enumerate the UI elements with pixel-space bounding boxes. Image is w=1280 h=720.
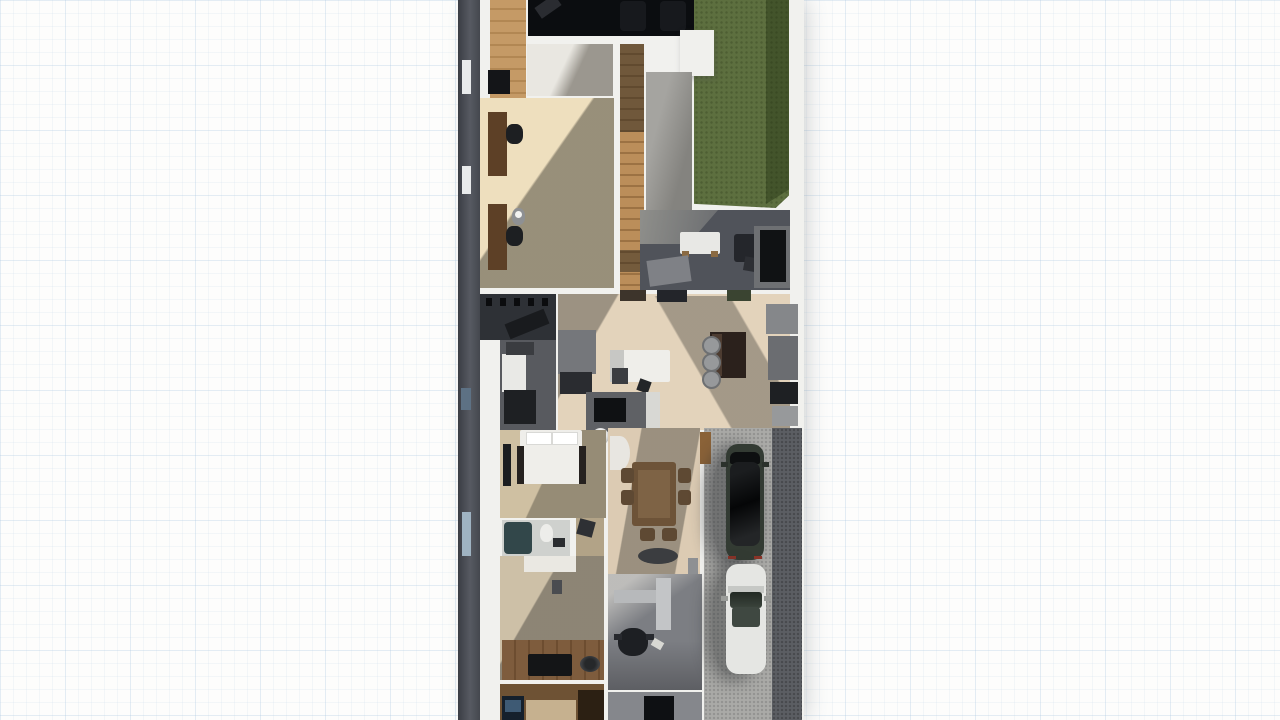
kitchen-low-cabinet: [560, 372, 592, 394]
dining-chair-3: [678, 468, 691, 483]
bed-pillow-2: [552, 432, 578, 445]
bed-pillow-1: [526, 432, 552, 445]
bedroom2-dresser: [524, 556, 576, 572]
staircase-upper-shadow: [620, 44, 644, 132]
study-office-chair: [618, 628, 648, 656]
car-white-mirror-left: [721, 596, 728, 601]
floorplan-canvas[interactable]: [0, 0, 1280, 720]
guest-tv-screen: [505, 700, 521, 712]
utility-cabinet: [506, 342, 534, 355]
workshop-toolrow: [486, 298, 548, 306]
dining-chair-1: [621, 468, 634, 483]
wall-unit-4: [772, 406, 798, 426]
bed-side-left: [517, 446, 524, 484]
driveway-dark-strip: [772, 428, 802, 720]
entry-door: [700, 432, 711, 464]
office-desk-2: [488, 204, 507, 270]
lawn-shaded-edge: [766, 0, 789, 206]
bathtub: [504, 522, 532, 554]
toilet: [540, 524, 553, 542]
study-desk-vertical: [656, 578, 671, 630]
dining-chair-6: [662, 528, 677, 541]
office-chair-2: [506, 226, 523, 246]
dining-chair-5: [640, 528, 655, 541]
person-head: [515, 211, 522, 218]
left-outer-wall: [458, 0, 480, 720]
left-wall-window-1: [462, 60, 471, 94]
entry-doormat-3: [727, 290, 751, 301]
dining-chair-2: [621, 490, 634, 505]
car-suv-taillight-left: [728, 556, 736, 559]
round-chair-3: [702, 370, 721, 389]
bath-fixture: [553, 538, 565, 547]
lower-media-tv: [644, 696, 674, 720]
bed-side-right: [579, 446, 586, 484]
car-suv-mirror-right: [762, 462, 769, 467]
car-suv-taillight-right: [754, 556, 762, 559]
page-background: [0, 0, 1280, 720]
bedroom2-wall-mirror: [552, 580, 562, 594]
car-white-roof-glass: [732, 607, 760, 627]
wall-unit-1: [766, 304, 798, 334]
entry-doormat-2: [657, 290, 687, 302]
left-wall-window-3: [461, 388, 471, 410]
kitchen-tall-cabinet: [558, 330, 596, 374]
terrace-bench-leg-2: [711, 251, 718, 257]
utility-counter: [504, 390, 536, 424]
media-recliner-2: [660, 1, 686, 31]
garden-lamp: [688, 558, 698, 574]
dining-chair-4: [678, 490, 691, 505]
kitchen-counter-end: [646, 392, 660, 432]
upper-small-room-floor: [527, 44, 613, 96]
bedroom2-basin: [580, 656, 600, 672]
wall-unit-2: [768, 336, 798, 380]
side-concrete-path: [646, 72, 692, 212]
entry-doormat-1: [620, 290, 646, 301]
left-wall-window-2: [462, 166, 471, 194]
rear-wall-corner: [680, 30, 714, 76]
kitchen-cooktop: [594, 398, 626, 422]
utility-fridge: [502, 354, 526, 392]
hall-console-table: [488, 70, 510, 94]
bedroom1-wardrobe: [503, 444, 511, 486]
office-chair-1: [506, 124, 523, 144]
guest-dark-wardrobe: [578, 690, 604, 720]
left-wall-window-4: [462, 512, 471, 556]
wall-unit-3: [770, 382, 798, 404]
car-suv-roof: [730, 462, 760, 546]
study-chair-arm-1: [614, 634, 622, 640]
dining-curved-seat: [610, 436, 630, 470]
guest-bed: [526, 700, 576, 720]
dining-oval-rug: [638, 548, 678, 564]
office-desk-1: [488, 112, 507, 176]
bedroom2-dark-mat: [528, 654, 572, 676]
coffee-machine: [612, 368, 628, 384]
car-white-mirror-right: [764, 596, 771, 601]
grill-unit: [760, 230, 786, 282]
car-white-windshield: [730, 592, 762, 608]
media-recliner-1: [620, 1, 646, 31]
dining-table-top: [638, 470, 670, 518]
car-suv-mirror-left: [721, 462, 728, 467]
